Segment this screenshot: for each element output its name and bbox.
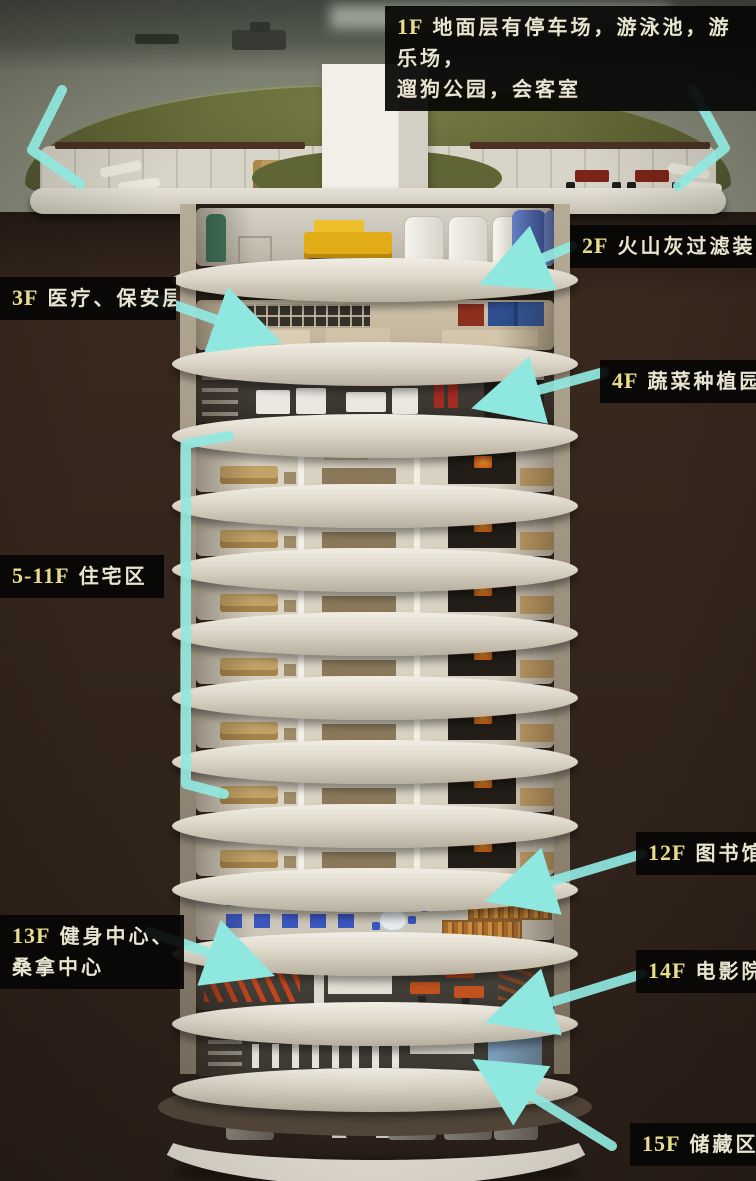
label-4f: 4F蔬菜种植园 [600,360,756,403]
label-1f-line2: 遛狗公园，会客室 [397,79,581,101]
floor-code-5-11f: 5-11F [12,563,70,588]
vehicle-turret [250,22,270,32]
floor-slab [172,342,578,386]
floor-slab [172,612,578,656]
floor-code-15f: 15F [642,1131,680,1156]
floor-slab [172,484,578,528]
base-bowl [150,1086,602,1181]
floor-slab [172,804,578,848]
floor-code-14f: 14F [648,958,686,983]
label-13f-line2: 桑拿中心 [12,957,104,979]
floor-slab [172,740,578,784]
label-1f: 1F地面层有停车场，游泳池，游乐场， 遛狗公园，会客室 [385,6,756,111]
hedge [135,34,179,44]
floor-code-4f: 4F [612,368,638,393]
label-5-11f: 5-11F住宅区 [0,555,164,598]
floor-slab [172,868,578,912]
label-12f-text: 图书馆 [695,843,756,865]
floor-slab [172,414,578,458]
label-2f-text: 火山灰过滤装置 [617,236,756,258]
dining-table [575,170,609,182]
label-14f-text: 电影院 [695,961,756,983]
floor-code-3f: 3F [12,285,38,310]
floor-slab [172,676,578,720]
label-15f-text: 储藏区 [689,1134,756,1156]
floor-slab [172,932,578,976]
floor-code-13f: 13F [12,923,50,948]
floor-code-1f: 1F [397,14,423,39]
floor-code-12f: 12F [648,840,686,865]
floor-code-2f: 2F [582,233,608,258]
label-15f: 15F储藏区 [630,1123,756,1166]
label-3f-text: 医疗、保安层 [47,288,176,310]
label-1f-line1: 地面层有停车场，游泳池，游乐场， [397,17,731,70]
label-4f-text: 蔬菜种植园 [647,371,756,393]
label-12f: 12F图书馆 [636,832,756,875]
roof-eave-left [55,142,305,149]
label-2f: 2F火山灰过滤装置 [570,225,756,268]
roof-eave-right [470,142,710,149]
label-13f: 13F健身中心、 桑拿中心 [0,915,184,989]
label-13f-line1: 健身中心、 [59,926,174,948]
floor-slab [172,258,578,302]
label-5-11f-text: 住宅区 [79,566,148,588]
label-3f: 3F医疗、保安层 [0,277,176,320]
floor-slab [172,548,578,592]
label-14f: 14F电影院 [636,950,756,993]
vehicle [232,30,286,50]
floor-slab [172,1002,578,1046]
bunker-cross-section-infographic: 1F地面层有停车场，游泳池，游乐场， 遛狗公园，会客室 2F火山灰过滤装置 3F… [0,0,756,1181]
dining-table [635,170,669,182]
